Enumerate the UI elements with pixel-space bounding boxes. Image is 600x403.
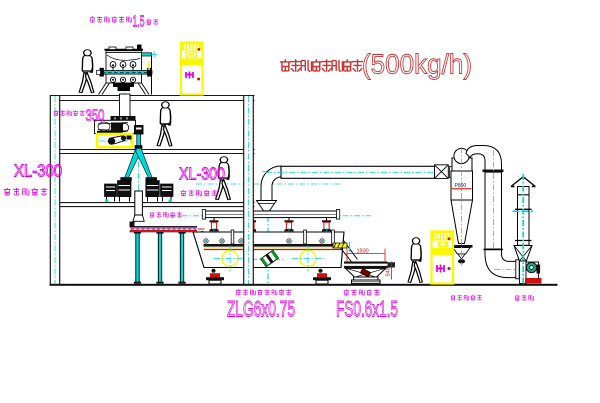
svg-text:ZLG6x0.75: ZLG6x0.75 [227,297,295,322]
svg-text:P800: P800 [455,183,467,189]
svg-text:350: 350 [86,106,105,125]
svg-text:1.5: 1.5 [133,14,145,31]
svg-text:XL-300: XL-300 [179,164,225,184]
svg-text:FS0.6x1.5: FS0.6x1.5 [336,297,398,322]
svg-text:(500kg/h): (500kg/h) [362,49,472,80]
svg-text:XL-300: XL-300 [14,161,62,181]
svg-text:1500: 1500 [357,249,369,255]
svg-text:540: 540 [385,267,391,276]
